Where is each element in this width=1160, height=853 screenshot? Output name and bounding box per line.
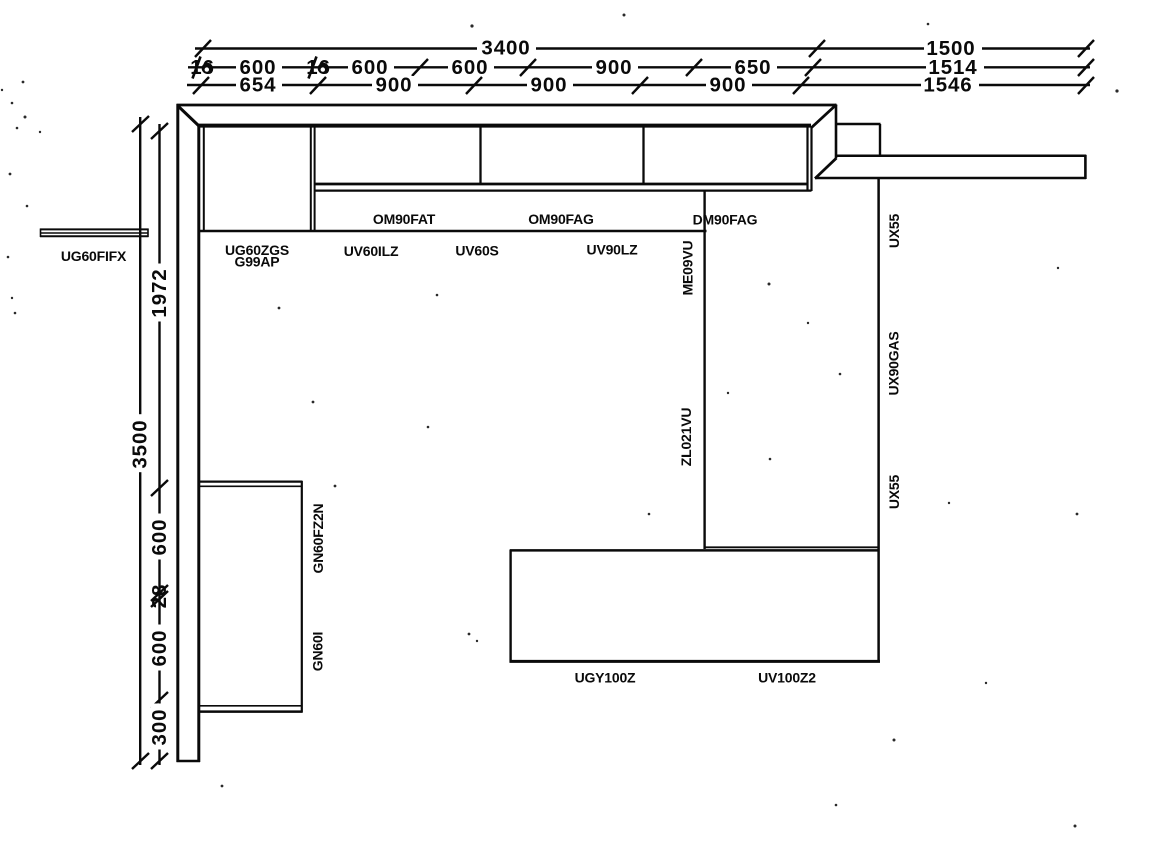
svg-text:UV100Z2: UV100Z2 — [758, 669, 816, 685]
svg-text:900: 900 — [596, 56, 633, 79]
svg-text:GN60FZ2N: GN60FZ2N — [310, 503, 326, 573]
svg-text:1972: 1972 — [148, 268, 171, 317]
svg-text:OM90FAT: OM90FAT — [373, 211, 436, 227]
svg-text:28: 28 — [148, 584, 171, 609]
svg-text:G99AP: G99AP — [235, 254, 280, 270]
svg-text:900: 900 — [710, 74, 747, 97]
svg-text:GN60I: GN60I — [310, 632, 326, 671]
svg-text:ME09VU: ME09VU — [680, 241, 696, 296]
svg-text:900: 900 — [531, 74, 568, 97]
svg-text:654: 654 — [240, 74, 277, 97]
svg-text:UX55: UX55 — [886, 213, 902, 248]
svg-text:300: 300 — [148, 709, 171, 746]
svg-text:UGY100Z: UGY100Z — [575, 669, 636, 685]
svg-text:600: 600 — [148, 630, 171, 667]
svg-text:DM90FAG: DM90FAG — [693, 212, 758, 228]
svg-text:3400: 3400 — [481, 36, 530, 59]
svg-text:600: 600 — [148, 519, 171, 556]
svg-text:1546: 1546 — [923, 74, 972, 97]
svg-text:UG60FIFX: UG60FIFX — [61, 248, 127, 264]
svg-text:UV60ILZ: UV60ILZ — [344, 243, 399, 259]
svg-text:UX55: UX55 — [886, 474, 902, 509]
svg-text:ZL021VU: ZL021VU — [678, 408, 694, 467]
svg-text:UV90LZ: UV90LZ — [587, 242, 639, 258]
svg-text:900: 900 — [376, 74, 413, 97]
svg-text:UX90GAS: UX90GAS — [886, 332, 902, 396]
svg-text:600: 600 — [452, 56, 489, 79]
svg-text:UV60S: UV60S — [455, 243, 498, 259]
svg-text:3500: 3500 — [129, 419, 152, 468]
svg-text:OM90FAG: OM90FAG — [528, 211, 594, 227]
